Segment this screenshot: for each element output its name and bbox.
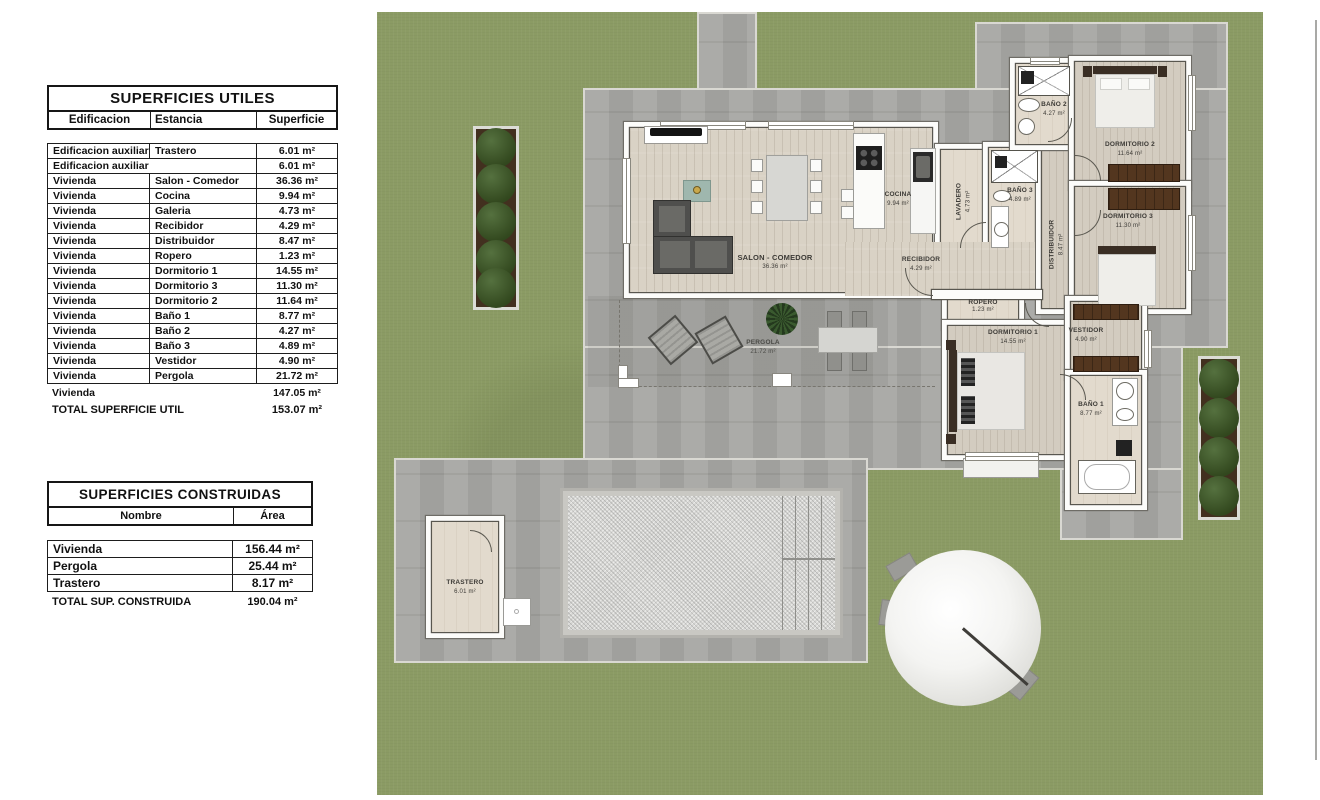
table-column-headers: Nombre Área <box>47 506 313 526</box>
table-cell: 11.64 m² <box>257 294 338 309</box>
total-row: TOTAL SUPERFICIE UTIL 153.07 m² <box>47 401 338 418</box>
table-title: SUPERFICIES CONSTRUIDAS <box>47 481 313 508</box>
table-cell: Cocina <box>150 189 257 204</box>
total-label: TOTAL SUP. CONSTRUIDA <box>47 596 191 608</box>
column-header: Superficie <box>256 112 336 128</box>
table-cell: Vivienda <box>48 174 150 189</box>
entry-path-step <box>697 12 757 90</box>
total-label: TOTAL SUPERFICIE UTIL <box>47 404 184 416</box>
table-cell: Salon - Comedor <box>150 174 257 189</box>
wardrobe <box>1108 164 1180 182</box>
kitchen-sink-basin <box>916 156 930 178</box>
table-cell: Vestidor <box>150 354 257 369</box>
bed-headboard <box>1098 246 1156 254</box>
table-row: Trastero8.17 m² <box>48 575 313 592</box>
nightstand <box>946 434 956 444</box>
column-header: Edificacion <box>49 112 150 128</box>
room-label-banyo3: BAÑO 34.89 m² <box>998 186 1042 205</box>
table-cell: Baño 2 <box>150 324 257 339</box>
table-cell: Recibidor <box>150 219 257 234</box>
table-cell: Ropero <box>150 249 257 264</box>
table-cell: Pergola <box>150 369 257 384</box>
column-base <box>772 373 792 387</box>
table-row: ViviendaGaleria4.73 m² <box>48 204 338 219</box>
cooktop <box>856 146 882 170</box>
sofa-cushion <box>660 241 690 268</box>
room-label-vestidor: VESTIDOR4.90 m² <box>1056 326 1116 345</box>
bar-stool <box>841 189 854 202</box>
room-label-dormitorio1: DORMITORIO 114.55 m² <box>978 328 1048 347</box>
table-cell: 6.01 m² <box>257 144 338 159</box>
room-label-distribuidor: DISTRIBUIDOR8.47 m² <box>1048 204 1067 284</box>
bar-stool <box>841 206 854 219</box>
room-label-dormitorio3: DORMITORIO 311.30 m² <box>1093 212 1163 231</box>
table-cell: 4.29 m² <box>257 219 338 234</box>
bathtub-basin <box>1084 464 1130 490</box>
table-row: ViviendaDistribuidor8.47 m² <box>48 234 338 249</box>
room-label-banyo1: BAÑO 18.77 m² <box>1068 400 1114 419</box>
pillow <box>1100 78 1122 90</box>
table-row: ViviendaBaño 24.27 m² <box>48 324 338 339</box>
table-cell: Trastero <box>48 575 233 592</box>
table-row: ViviendaSalon - Comedor36.36 m² <box>48 174 338 189</box>
window <box>1188 215 1196 271</box>
table-cell: 4.90 m² <box>257 354 338 369</box>
table-cell: Distribuidor <box>150 234 257 249</box>
table-cell: Dormitorio 1 <box>150 264 257 279</box>
table-cell: 21.72 m² <box>257 369 338 384</box>
table-cell: Vivienda <box>48 219 150 234</box>
table-cell: 14.55 m² <box>257 264 338 279</box>
table-row: ViviendaVestidor4.90 m² <box>48 354 338 369</box>
column-header: Estancia <box>150 112 256 128</box>
plan-right-border <box>1315 20 1317 760</box>
bush-icon <box>476 202 516 242</box>
bush-icon <box>476 268 516 308</box>
table-column-headers: Edificacion Estancia Superficie <box>47 110 338 130</box>
room-label-ropero: ROPERO1.23 m² <box>950 299 1016 315</box>
closet <box>1073 356 1139 372</box>
column-base <box>618 378 639 388</box>
dining-chair <box>751 201 763 214</box>
column-header: Área <box>233 508 311 524</box>
table-row: ViviendaCocina9.94 m² <box>48 189 338 204</box>
table-row: ViviendaPergola21.72 m² <box>48 369 338 384</box>
toilet <box>1018 118 1035 135</box>
table-row: Edificacion auxiliarTrastero6.01 m² <box>48 144 338 159</box>
subtotal-label: Vivienda <box>47 387 95 399</box>
bed <box>1098 254 1156 306</box>
table-cell: 25.44 m² <box>233 558 313 575</box>
bush-icon <box>1199 476 1239 516</box>
dining-chair <box>751 180 763 193</box>
window <box>1030 57 1060 65</box>
tv <box>650 128 702 136</box>
table-cell: Vivienda <box>48 354 150 369</box>
table-cell: 8.17 m² <box>233 575 313 592</box>
room-label-cocina: COCINA9.94 m² <box>868 190 928 209</box>
bush-icon <box>1199 437 1239 477</box>
table-cell: Edificacion auxiliar <box>48 144 150 159</box>
table-cell: Dormitorio 3 <box>150 279 257 294</box>
table-cell: Vivienda <box>48 294 150 309</box>
window <box>1188 75 1196 131</box>
total-value: 153.07 m² <box>256 404 338 416</box>
pool-step-line <box>821 496 822 630</box>
table-row: ViviendaDormitorio 311.30 m² <box>48 279 338 294</box>
room-label-dormitorio2: DORMITORIO 211.64 m² <box>1095 140 1165 159</box>
table-row: ViviendaBaño 18.77 m² <box>48 309 338 324</box>
superficies-utiles-table: SUPERFICIES UTILES Edificacion Estancia … <box>47 85 338 418</box>
dining-chair <box>810 180 822 193</box>
window <box>1144 330 1152 368</box>
subtotal-value: 147.05 m² <box>256 387 338 399</box>
table-cell: Edificacion auxiliar <box>48 159 257 174</box>
table-cell: 11.30 m² <box>257 279 338 294</box>
room-label-lavadero: LAVADERO4.73 m² <box>955 166 974 236</box>
nightstand <box>1158 66 1167 77</box>
floorplan-page: SUPERFICIES UTILES Edificacion Estancia … <box>0 0 1320 800</box>
table-cell: Vivienda <box>48 264 150 279</box>
table-cell: 36.36 m² <box>257 174 338 189</box>
total-value: 190.04 m² <box>232 596 313 608</box>
superficies-construidas-table: SUPERFICIES CONSTRUIDAS Nombre Área Vivi… <box>47 481 313 612</box>
table-cell: Vivienda <box>48 369 150 384</box>
room-label-banyo2: BAÑO 24.27 m² <box>1034 100 1074 119</box>
terrace-step <box>963 458 1039 478</box>
wardrobe <box>1108 188 1180 210</box>
table-cell: 4.73 m² <box>257 204 338 219</box>
shower-drain <box>1021 71 1034 84</box>
table-body: Edificacion auxiliarTrastero6.01 m²Edifi… <box>47 143 338 384</box>
column-header: Nombre <box>49 508 233 524</box>
table-cell: 4.27 m² <box>257 324 338 339</box>
pool-step-line <box>782 558 835 560</box>
bush-icon <box>1199 359 1239 399</box>
dining-chair <box>751 159 763 172</box>
room-label-salon: SALON - COMEDOR36.36 m² <box>720 252 830 272</box>
table-cell: Vivienda <box>48 309 150 324</box>
table-row: ViviendaRopero1.23 m² <box>48 249 338 264</box>
pillow <box>1128 78 1150 90</box>
table-row: ViviendaDormitorio 211.64 m² <box>48 294 338 309</box>
room-label-trastero: TRASTERO6.01 m² <box>435 578 495 597</box>
table-cell: Vivienda <box>48 339 150 354</box>
subtotal-row: Vivienda 147.05 m² <box>47 385 338 401</box>
toilet <box>1116 408 1134 421</box>
pool-step-line <box>795 496 796 630</box>
toilet <box>994 222 1009 237</box>
table-row: ViviendaBaño 34.89 m² <box>48 339 338 354</box>
sofa-cushion <box>659 206 685 232</box>
dining-chair <box>810 159 822 172</box>
bush-icon <box>476 164 516 204</box>
table-row: ViviendaDormitorio 114.55 m² <box>48 264 338 279</box>
table-cell: Pergola <box>48 558 233 575</box>
table-cell: 4.89 m² <box>257 339 338 354</box>
pillow <box>961 358 975 386</box>
table-cell: 8.77 m² <box>257 309 338 324</box>
nightstand <box>946 340 956 350</box>
table-row: ViviendaRecibidor4.29 m² <box>48 219 338 234</box>
window <box>622 158 631 244</box>
table-cell: 8.47 m² <box>257 234 338 249</box>
table-cell: Vivienda <box>48 234 150 249</box>
washbasin <box>1116 382 1134 400</box>
table-cell: Trastero <box>150 144 257 159</box>
recibidor-right-wall <box>932 290 1042 299</box>
table-cell: Vivienda <box>48 204 150 219</box>
shower-drain <box>995 156 1007 168</box>
outdoor-table <box>818 327 878 353</box>
sliding-door <box>965 452 1039 461</box>
dining-chair <box>810 201 822 214</box>
table-cell: Vivienda <box>48 249 150 264</box>
table-title: SUPERFICIES UTILES <box>47 85 338 112</box>
table-row: Edificacion auxiliar6.01 m² <box>48 159 338 174</box>
table-row: Vivienda156.44 m² <box>48 541 313 558</box>
dining-table <box>766 155 808 221</box>
pool-step-line <box>782 496 783 630</box>
room-label-recibidor: RECIBIDOR4.29 m² <box>890 255 952 274</box>
pool-step-line <box>808 496 809 630</box>
potted-plant-icon <box>766 303 798 335</box>
window <box>768 121 854 130</box>
table-cell: Baño 1 <box>150 309 257 324</box>
table-cell: Galeria <box>150 204 257 219</box>
table-cell: Baño 3 <box>150 339 257 354</box>
bed-headboard <box>949 350 957 432</box>
table-cell: Dormitorio 2 <box>150 294 257 309</box>
nightstand <box>1083 66 1092 77</box>
table-cell: 156.44 m² <box>233 541 313 558</box>
table-cell: Vivienda <box>48 189 150 204</box>
bush-icon <box>476 128 516 168</box>
bush-icon <box>1199 398 1239 438</box>
table-body: Vivienda156.44 m²Pergola25.44 m²Trastero… <box>47 540 313 592</box>
table-cell: Vivienda <box>48 541 233 558</box>
table-cell: 1.23 m² <box>257 249 338 264</box>
closet <box>1073 304 1139 320</box>
floor-lamp-icon <box>693 186 701 194</box>
total-row: TOTAL SUP. CONSTRUIDA 190.04 m² <box>47 592 313 612</box>
table-cell: Vivienda <box>48 279 150 294</box>
table-cell: 6.01 m² <box>257 159 338 174</box>
room-label-pergola: PERGOLA21.72 m² <box>733 338 793 357</box>
table-cell: 9.94 m² <box>257 189 338 204</box>
washer <box>1116 440 1132 456</box>
table-cell: Vivienda <box>48 324 150 339</box>
utility-box-mark <box>514 609 519 614</box>
bed-headboard <box>1093 66 1157 74</box>
table-row: Pergola25.44 m² <box>48 558 313 575</box>
pillow <box>961 396 975 424</box>
